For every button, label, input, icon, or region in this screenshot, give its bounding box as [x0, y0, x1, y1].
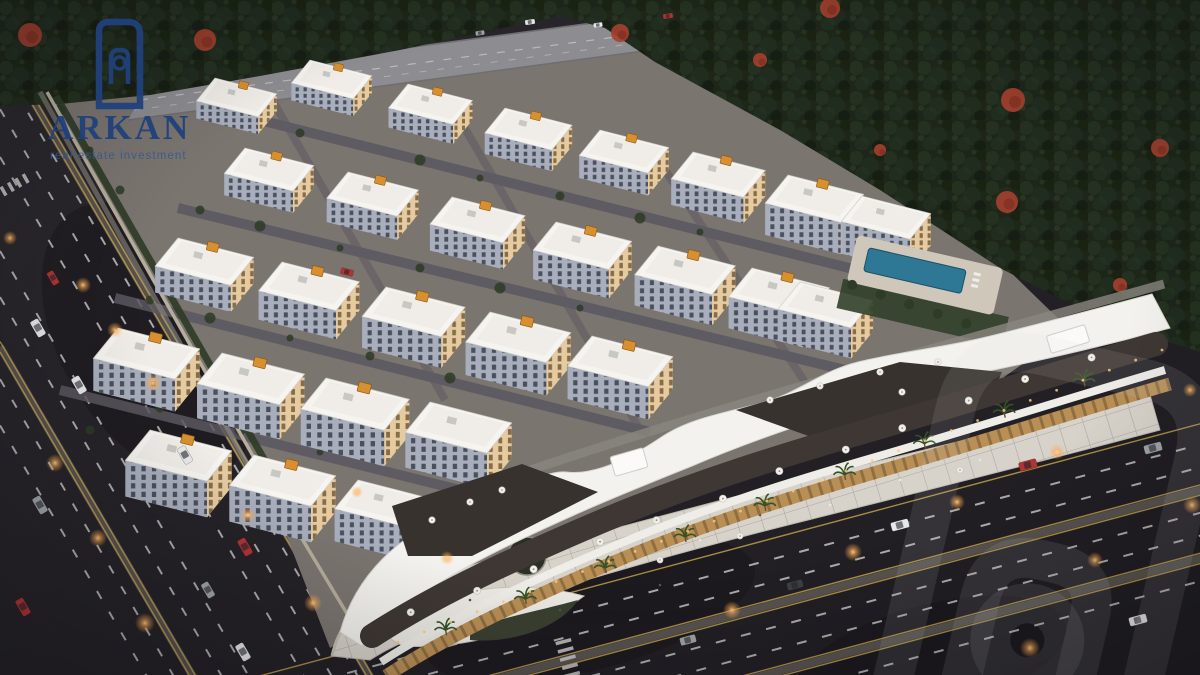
vignette: [0, 0, 1200, 675]
scene-svg: [0, 0, 1200, 675]
aerial-render: ARKAN real estate investment: [0, 0, 1200, 675]
